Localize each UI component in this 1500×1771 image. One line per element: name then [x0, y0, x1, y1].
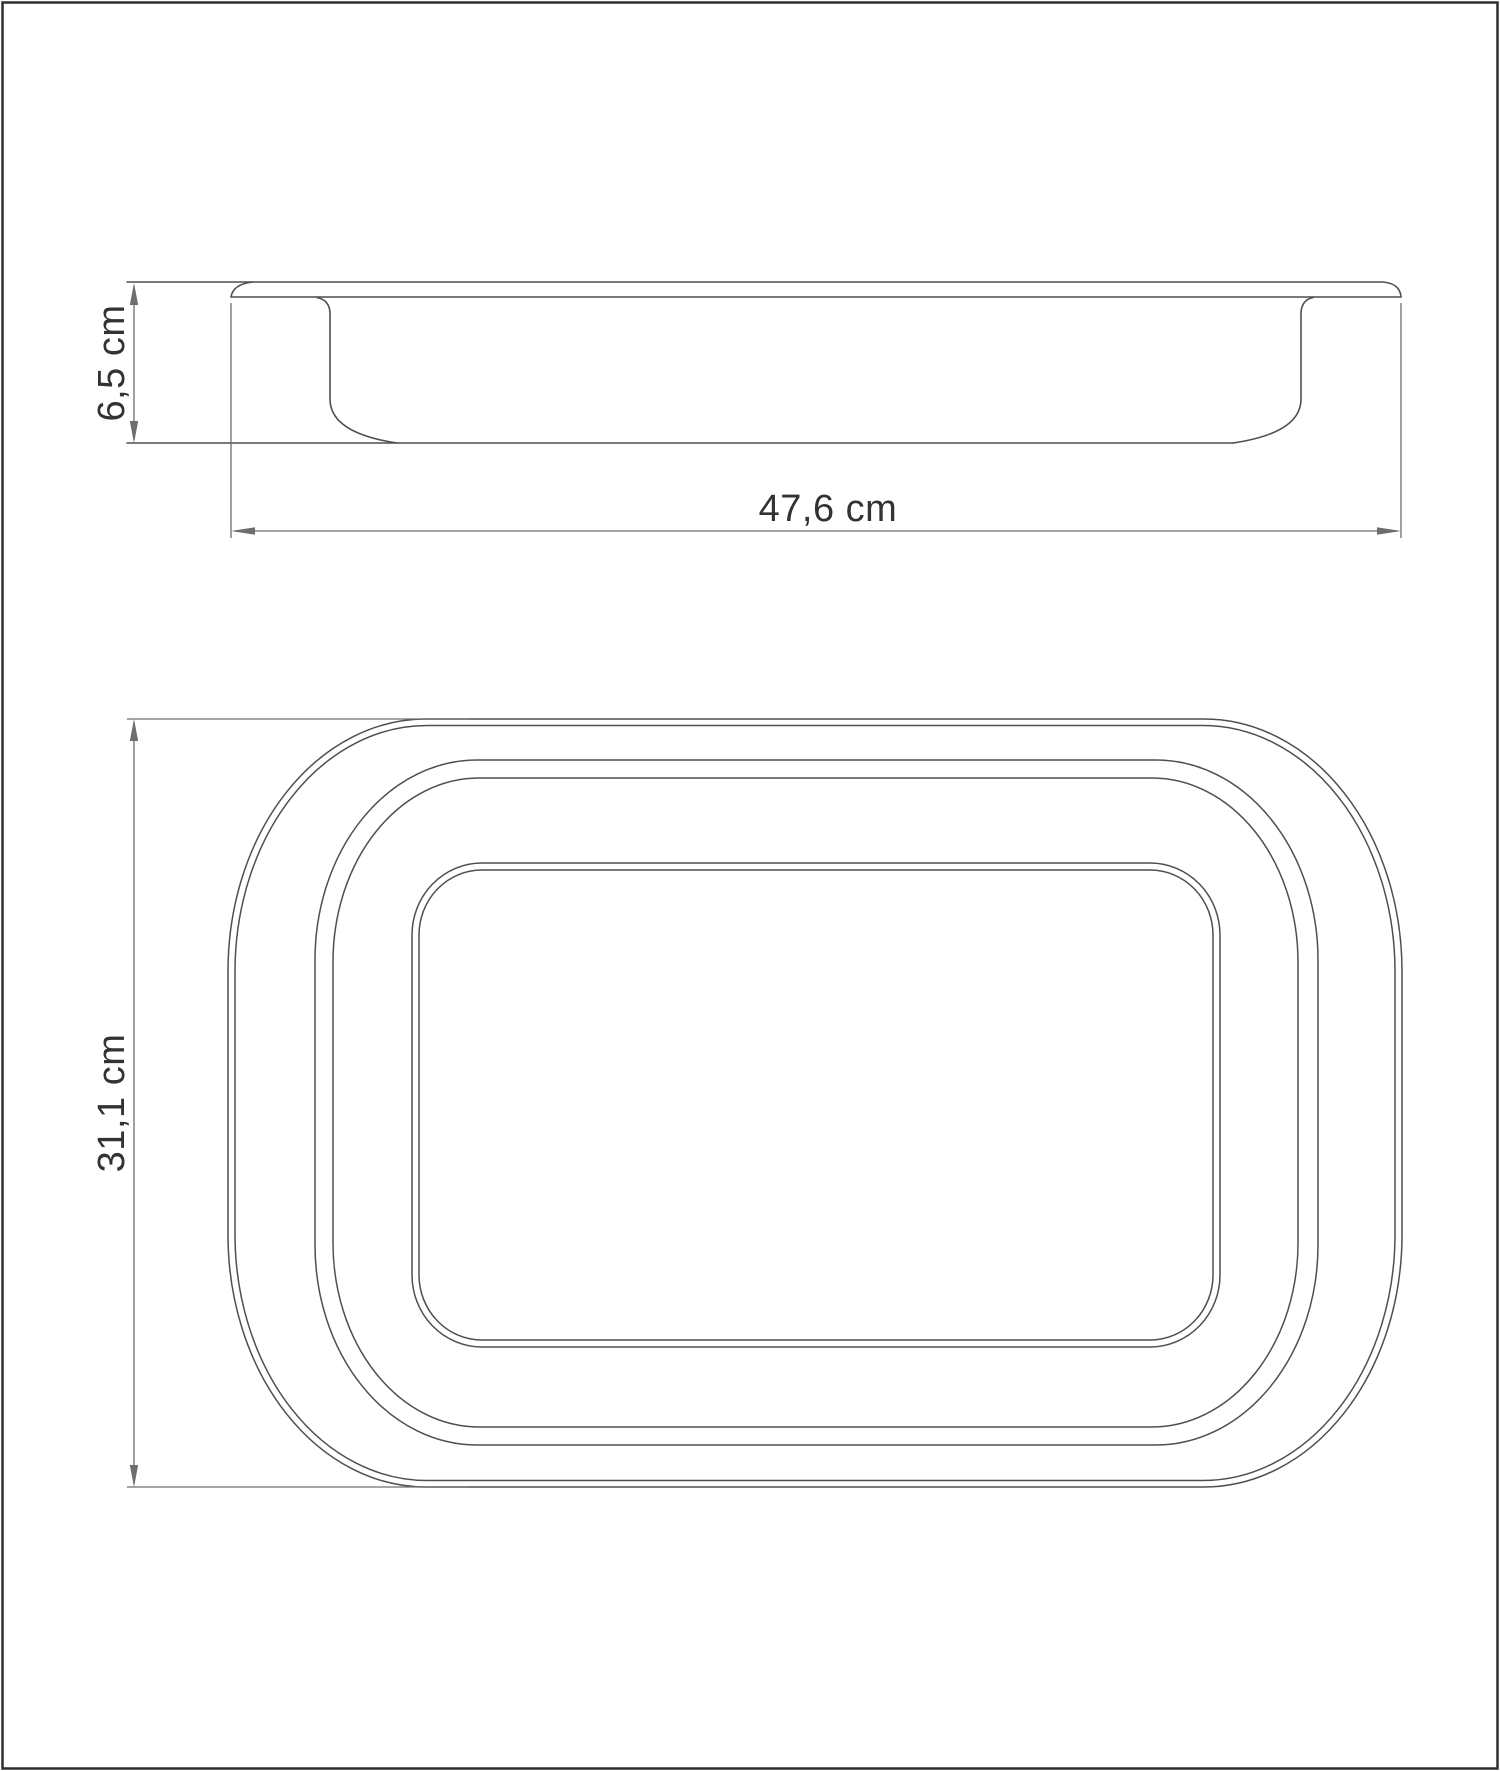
technical-drawing-svg: 6,5 cm 47,6 cm 31,1 cm	[0, 0, 1500, 1771]
side-width-label: 47,6 cm	[759, 488, 898, 530]
page-background	[0, 0, 1500, 1771]
drawing-page: 6,5 cm 47,6 cm 31,1 cm	[0, 0, 1500, 1771]
plan-height-label: 31,1 cm	[91, 1034, 133, 1173]
side-height-label: 6,5 cm	[91, 304, 133, 421]
